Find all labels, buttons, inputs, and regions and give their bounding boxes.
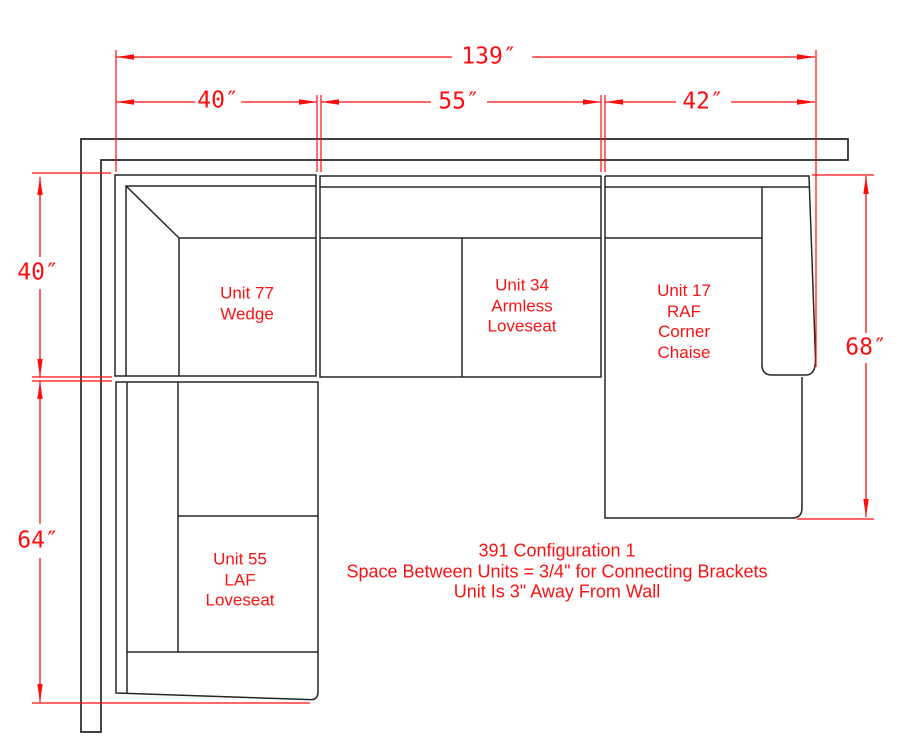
wall-path [81, 139, 848, 732]
label-unit-77-wedge: Unit 77 Wedge [220, 284, 274, 325]
unit-77-type: Wedge [220, 304, 274, 325]
dim-wedge-depth: 40″ [15, 262, 61, 285]
dim-chaise-width: 42″ [680, 91, 726, 114]
dim-wedge-width: 40″ [195, 90, 241, 113]
unit-77-name: Unit 77 [220, 284, 274, 305]
armless-body [320, 176, 601, 377]
unit-34-type1: Armless [488, 296, 557, 317]
dim-laf-length: 64″ [15, 530, 61, 553]
unit-34-armless-outline [320, 176, 601, 377]
dim-chaise-depth: 68″ [843, 337, 889, 360]
unit-17-type2: Corner [657, 322, 711, 343]
unit-55-name: Unit 55 [206, 549, 275, 570]
unit-17-type1: RAF [657, 302, 711, 323]
dimension-arrowheads [37, 54, 868, 702]
unit-34-type2: Loveseat [488, 316, 557, 337]
config-note-spacing: Space Between Units = 3/4" for Connectin… [346, 561, 767, 582]
config-note-wall: Unit Is 3" Away From Wall [346, 581, 767, 602]
wedge-corner-miter [126, 186, 179, 238]
wall-outline [81, 139, 848, 732]
label-unit-55-laf: Unit 55 LAF Loveseat [206, 549, 275, 611]
config-title: 391 Configuration 1 [346, 540, 767, 561]
dim-total-width: 139″ [459, 46, 518, 69]
label-unit-34-armless: Unit 34 Armless Loveseat [488, 275, 557, 337]
floorplan-canvas: 139″ 40″ 55″ 42″ 40″ 64″ 68″ Unit 77 Wed… [0, 0, 905, 751]
configuration-notes: 391 Configuration 1 Space Between Units … [346, 540, 767, 602]
unit-17-name: Unit 17 [657, 281, 711, 302]
label-unit-17-chaise: Unit 17 RAF Corner Chaise [657, 281, 711, 363]
dim-armless-width: 55″ [436, 91, 482, 114]
dimension-lines [40, 57, 866, 702]
unit-77-wedge-outline [115, 175, 316, 376]
unit-55-laf-outline [116, 382, 318, 700]
unit-34-name: Unit 34 [488, 275, 557, 296]
unit-17-type3: Chaise [657, 343, 711, 364]
unit-55-type2: Loveseat [206, 590, 275, 611]
unit-55-type1: LAF [206, 570, 275, 591]
